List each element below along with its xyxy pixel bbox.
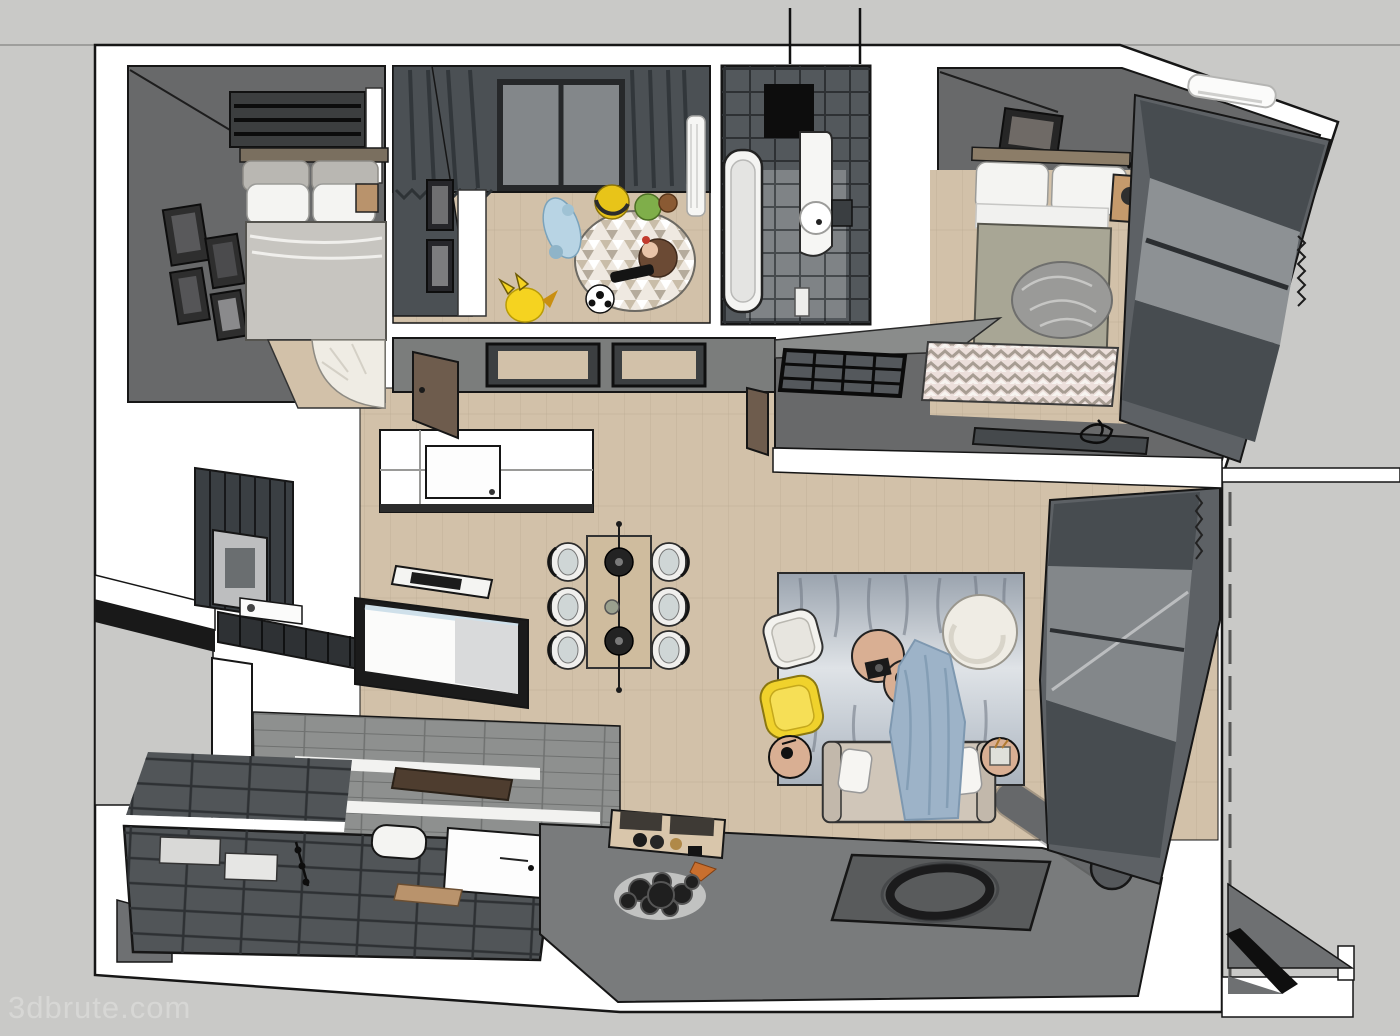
watermark: 3dbrute.com bbox=[8, 990, 191, 1026]
door-right bbox=[747, 388, 768, 455]
floor-plan-render: 3dbrute.com bbox=[0, 0, 1400, 1036]
door-frame-2-floor bbox=[622, 351, 696, 379]
table-plant bbox=[605, 600, 619, 614]
doll-bow bbox=[642, 236, 650, 244]
kids-door-leaf bbox=[458, 190, 486, 316]
kids-room bbox=[393, 66, 710, 323]
bath-shelf bbox=[832, 200, 852, 226]
washer-block-2 bbox=[225, 853, 278, 881]
wash-basin bbox=[800, 132, 832, 256]
sideboard-panel-2 bbox=[670, 816, 715, 836]
balcony-band bbox=[1222, 468, 1400, 482]
brown-toy bbox=[659, 194, 677, 212]
basket bbox=[990, 747, 1010, 765]
chevron-rug bbox=[922, 342, 1118, 406]
gold-vase bbox=[670, 838, 682, 850]
bath2-white-wall bbox=[444, 828, 548, 898]
basin-bowl bbox=[800, 202, 832, 234]
dining-area bbox=[549, 521, 689, 693]
pikachu-toy bbox=[506, 288, 544, 322]
bedroom-1 bbox=[128, 66, 388, 408]
living-room bbox=[757, 573, 1024, 822]
yellow-armchair bbox=[757, 673, 826, 742]
counter-appliance bbox=[426, 446, 500, 498]
door-frame-1-floor bbox=[498, 351, 588, 379]
cabinet-panel bbox=[225, 548, 255, 588]
curtain-top bbox=[1048, 492, 1200, 570]
shower-tray bbox=[795, 288, 809, 316]
washer-block-1 bbox=[160, 837, 221, 865]
sideboard-panel-1 bbox=[620, 811, 663, 831]
bed-1 bbox=[240, 148, 388, 340]
bathtub-2 bbox=[371, 824, 427, 860]
green-toy bbox=[635, 194, 661, 220]
doll-face bbox=[642, 242, 658, 258]
sofa-pillow-left bbox=[837, 748, 873, 794]
counter-edge bbox=[380, 504, 593, 512]
bathroom-1 bbox=[722, 66, 870, 324]
island-shade bbox=[455, 618, 518, 694]
shower-opening bbox=[764, 84, 814, 138]
nightstand-1 bbox=[356, 184, 378, 212]
headboard bbox=[240, 148, 388, 162]
